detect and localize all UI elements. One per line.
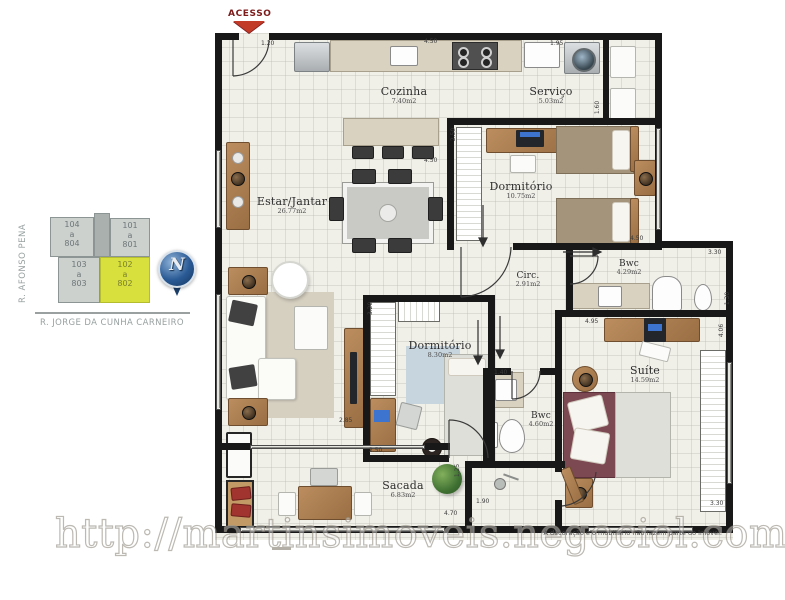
dimension-label: 4.95 bbox=[585, 318, 598, 325]
street-divider-line bbox=[35, 312, 190, 314]
unit-number: 804 bbox=[51, 239, 93, 249]
room-area: 7.40m2 bbox=[339, 98, 469, 105]
room-area: 10.75m2 bbox=[456, 193, 586, 200]
unit-number: 104 bbox=[51, 220, 93, 230]
room-label-cozinha: Cozinha 7.40m2 bbox=[339, 86, 469, 104]
room-name: Dormitório bbox=[456, 181, 586, 193]
flow-arrow-head bbox=[593, 248, 601, 256]
dimension-label: 1.90 bbox=[476, 498, 489, 505]
room-name: Serviço bbox=[486, 86, 616, 98]
unit-number: 103 bbox=[59, 260, 99, 270]
unit-number: 101 bbox=[111, 221, 149, 231]
room-area: 2.91m2 bbox=[463, 281, 593, 288]
door-arc bbox=[562, 472, 596, 506]
unit-number: 802 bbox=[101, 279, 149, 289]
keyplan-unit-103: 103 a 803 bbox=[58, 257, 100, 303]
room-name: Cozinha bbox=[339, 86, 469, 98]
divider-dash bbox=[272, 547, 291, 550]
floorplan-page: R. AFONSO PENA 104 a 804 101 a 801 103 a… bbox=[0, 0, 785, 600]
dimension-label: 1.25 bbox=[454, 464, 461, 477]
room-label-estar-jantar: Estar/Jantar 26.77m2 bbox=[227, 196, 357, 214]
room-area: 4.60m2 bbox=[476, 421, 606, 428]
dimension-label: 4.50 bbox=[424, 157, 437, 164]
dimension-label: 3.30 bbox=[710, 500, 723, 507]
unit-sep: a bbox=[51, 230, 93, 240]
compass-north-letter: N bbox=[158, 255, 196, 275]
unit-number: 803 bbox=[59, 279, 99, 289]
dimension-label: 2.85 bbox=[339, 417, 352, 424]
keyplan-unit-104: 104 a 804 bbox=[50, 217, 94, 257]
street-label-jorge-cunha-carneiro: R. JORGE DA CUNHA CARNEIRO bbox=[22, 318, 202, 328]
unit-number: 801 bbox=[111, 240, 149, 250]
dimension-label: 1.20 bbox=[261, 40, 274, 47]
dimension-label: 1.30 bbox=[724, 292, 731, 305]
dimension-label: 1.40 bbox=[494, 369, 507, 376]
unit-sep: a bbox=[101, 270, 149, 280]
street-label-afonso-pena: R. AFONSO PENA bbox=[18, 213, 32, 313]
dimension-label: 4.50 bbox=[630, 235, 643, 242]
room-label-suite: Suíte 14.59m2 bbox=[580, 365, 710, 383]
door-arc bbox=[512, 371, 540, 399]
room-area: 26.77m2 bbox=[227, 208, 357, 215]
dimension-label: 3.20 bbox=[367, 302, 374, 315]
room-label-dormitorio2: Dormitório 8.30m2 bbox=[375, 340, 505, 358]
room-area: 6.83m2 bbox=[338, 492, 468, 499]
keyplan-core bbox=[94, 213, 110, 257]
unit-sep: a bbox=[59, 270, 99, 280]
unit-sep: a bbox=[111, 231, 149, 241]
dimension-label: 2.50 bbox=[450, 128, 457, 141]
room-label-dormitorio1: Dormitório 10.75m2 bbox=[456, 181, 586, 199]
dimension-label: 2.50 bbox=[369, 447, 382, 454]
flow-arrow-head bbox=[479, 238, 487, 246]
compass: N bbox=[158, 250, 196, 302]
room-name: Suíte bbox=[580, 365, 710, 377]
dimension-label: 1.95 bbox=[550, 40, 563, 47]
room-label-bwc1: Bwc 4.29m2 bbox=[564, 260, 694, 276]
room-name: Dormitório bbox=[375, 340, 505, 352]
room-name: Estar/Jantar bbox=[227, 196, 357, 208]
room-area: 14.59m2 bbox=[580, 377, 710, 384]
dimension-label: 4.50 bbox=[424, 38, 437, 45]
access-label: ACESSO bbox=[228, 9, 272, 19]
access-arrow-icon bbox=[233, 21, 265, 33]
room-label-bwc2: Bwc 4.60m2 bbox=[476, 412, 606, 428]
unit-number: 102 bbox=[101, 260, 149, 270]
room-area: 8.30m2 bbox=[375, 352, 505, 359]
dimension-label: 1.60 bbox=[594, 101, 601, 114]
dimension-label: 3.30 bbox=[708, 249, 721, 256]
room-label-sacada: Sacada 6.83m2 bbox=[338, 480, 468, 498]
keyplan-unit-101: 101 a 801 bbox=[110, 218, 150, 257]
room-area: 4.29m2 bbox=[564, 269, 694, 276]
keyplan-unit-102-highlighted: 102 a 802 bbox=[100, 257, 150, 303]
disclaimer-text: A decoração e o mobiliário não fazem par… bbox=[462, 529, 722, 537]
dimension-label: 4.06 bbox=[718, 324, 725, 337]
room-name: Sacada bbox=[338, 480, 468, 492]
